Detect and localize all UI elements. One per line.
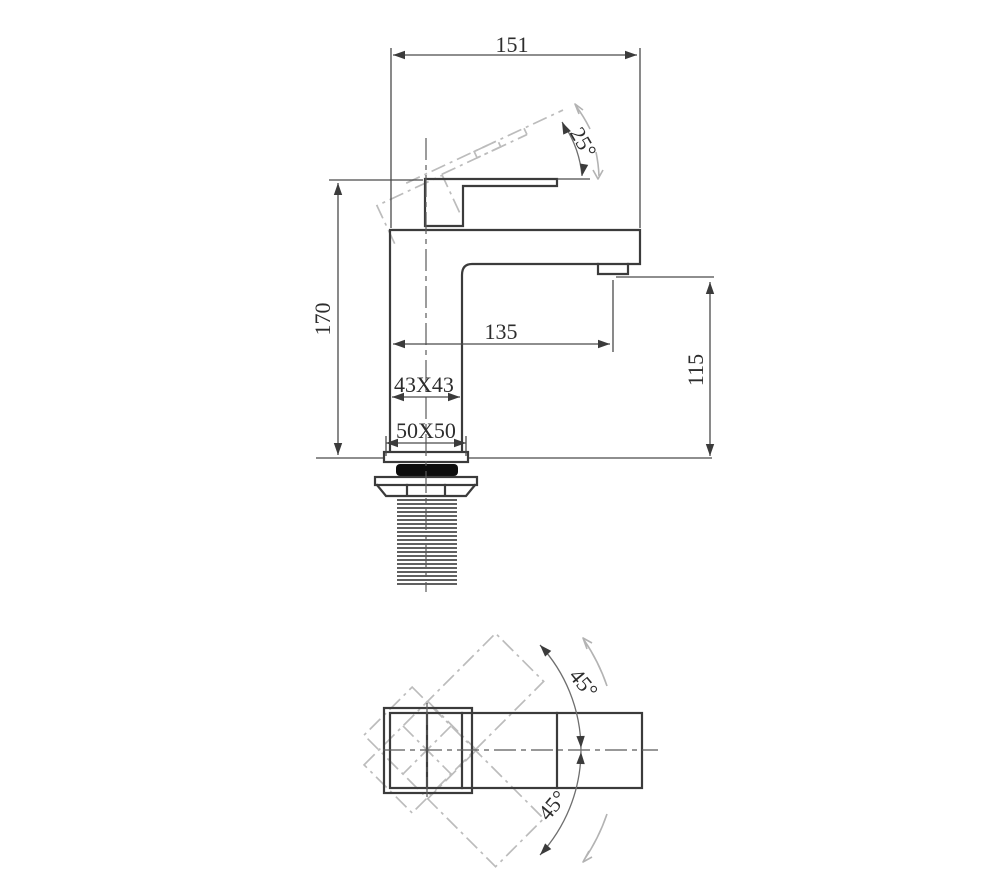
dim-label-body-section: 43X43 <box>394 372 454 397</box>
threaded-shank <box>397 500 457 584</box>
faucet-technical-drawing: 151 25° 170 135 <box>0 0 1000 896</box>
swing-direction-arrow-down <box>583 814 607 862</box>
dimension-body-section: 43X43 <box>392 372 460 401</box>
dimension-handle-tilt: 25° <box>558 104 603 179</box>
rotation-direction-arrow-down <box>593 152 603 179</box>
handle-lever <box>425 179 557 226</box>
handle-phantom-25deg <box>374 110 585 244</box>
dim-label-overall-height: 170 <box>310 303 335 336</box>
dim-label-overall-width: 151 <box>496 32 529 57</box>
dim-label-spout-reach: 135 <box>485 319 518 344</box>
dimension-overall-height: 170 <box>310 180 423 455</box>
dim-label-swing-up: 45° <box>564 663 603 703</box>
technical-drawing-page: 151 25° 170 135 <box>0 0 1000 896</box>
dim-label-swing-down: 45° <box>533 785 572 825</box>
phantom-lever-tip-edge <box>524 128 527 134</box>
rubber-gasket <box>396 464 458 476</box>
dim-label-base-plate: 50X50 <box>396 418 456 443</box>
spout-nozzle <box>598 264 628 274</box>
dimension-overall-width: 151 <box>391 32 640 228</box>
dim-label-spout-height: 115 <box>683 354 708 386</box>
top-view: 45° 45° <box>364 633 658 866</box>
side-view: 151 25° 170 135 <box>310 32 714 592</box>
dimension-spout-height: 115 <box>616 277 714 456</box>
phantom-lever-detail <box>474 140 501 157</box>
